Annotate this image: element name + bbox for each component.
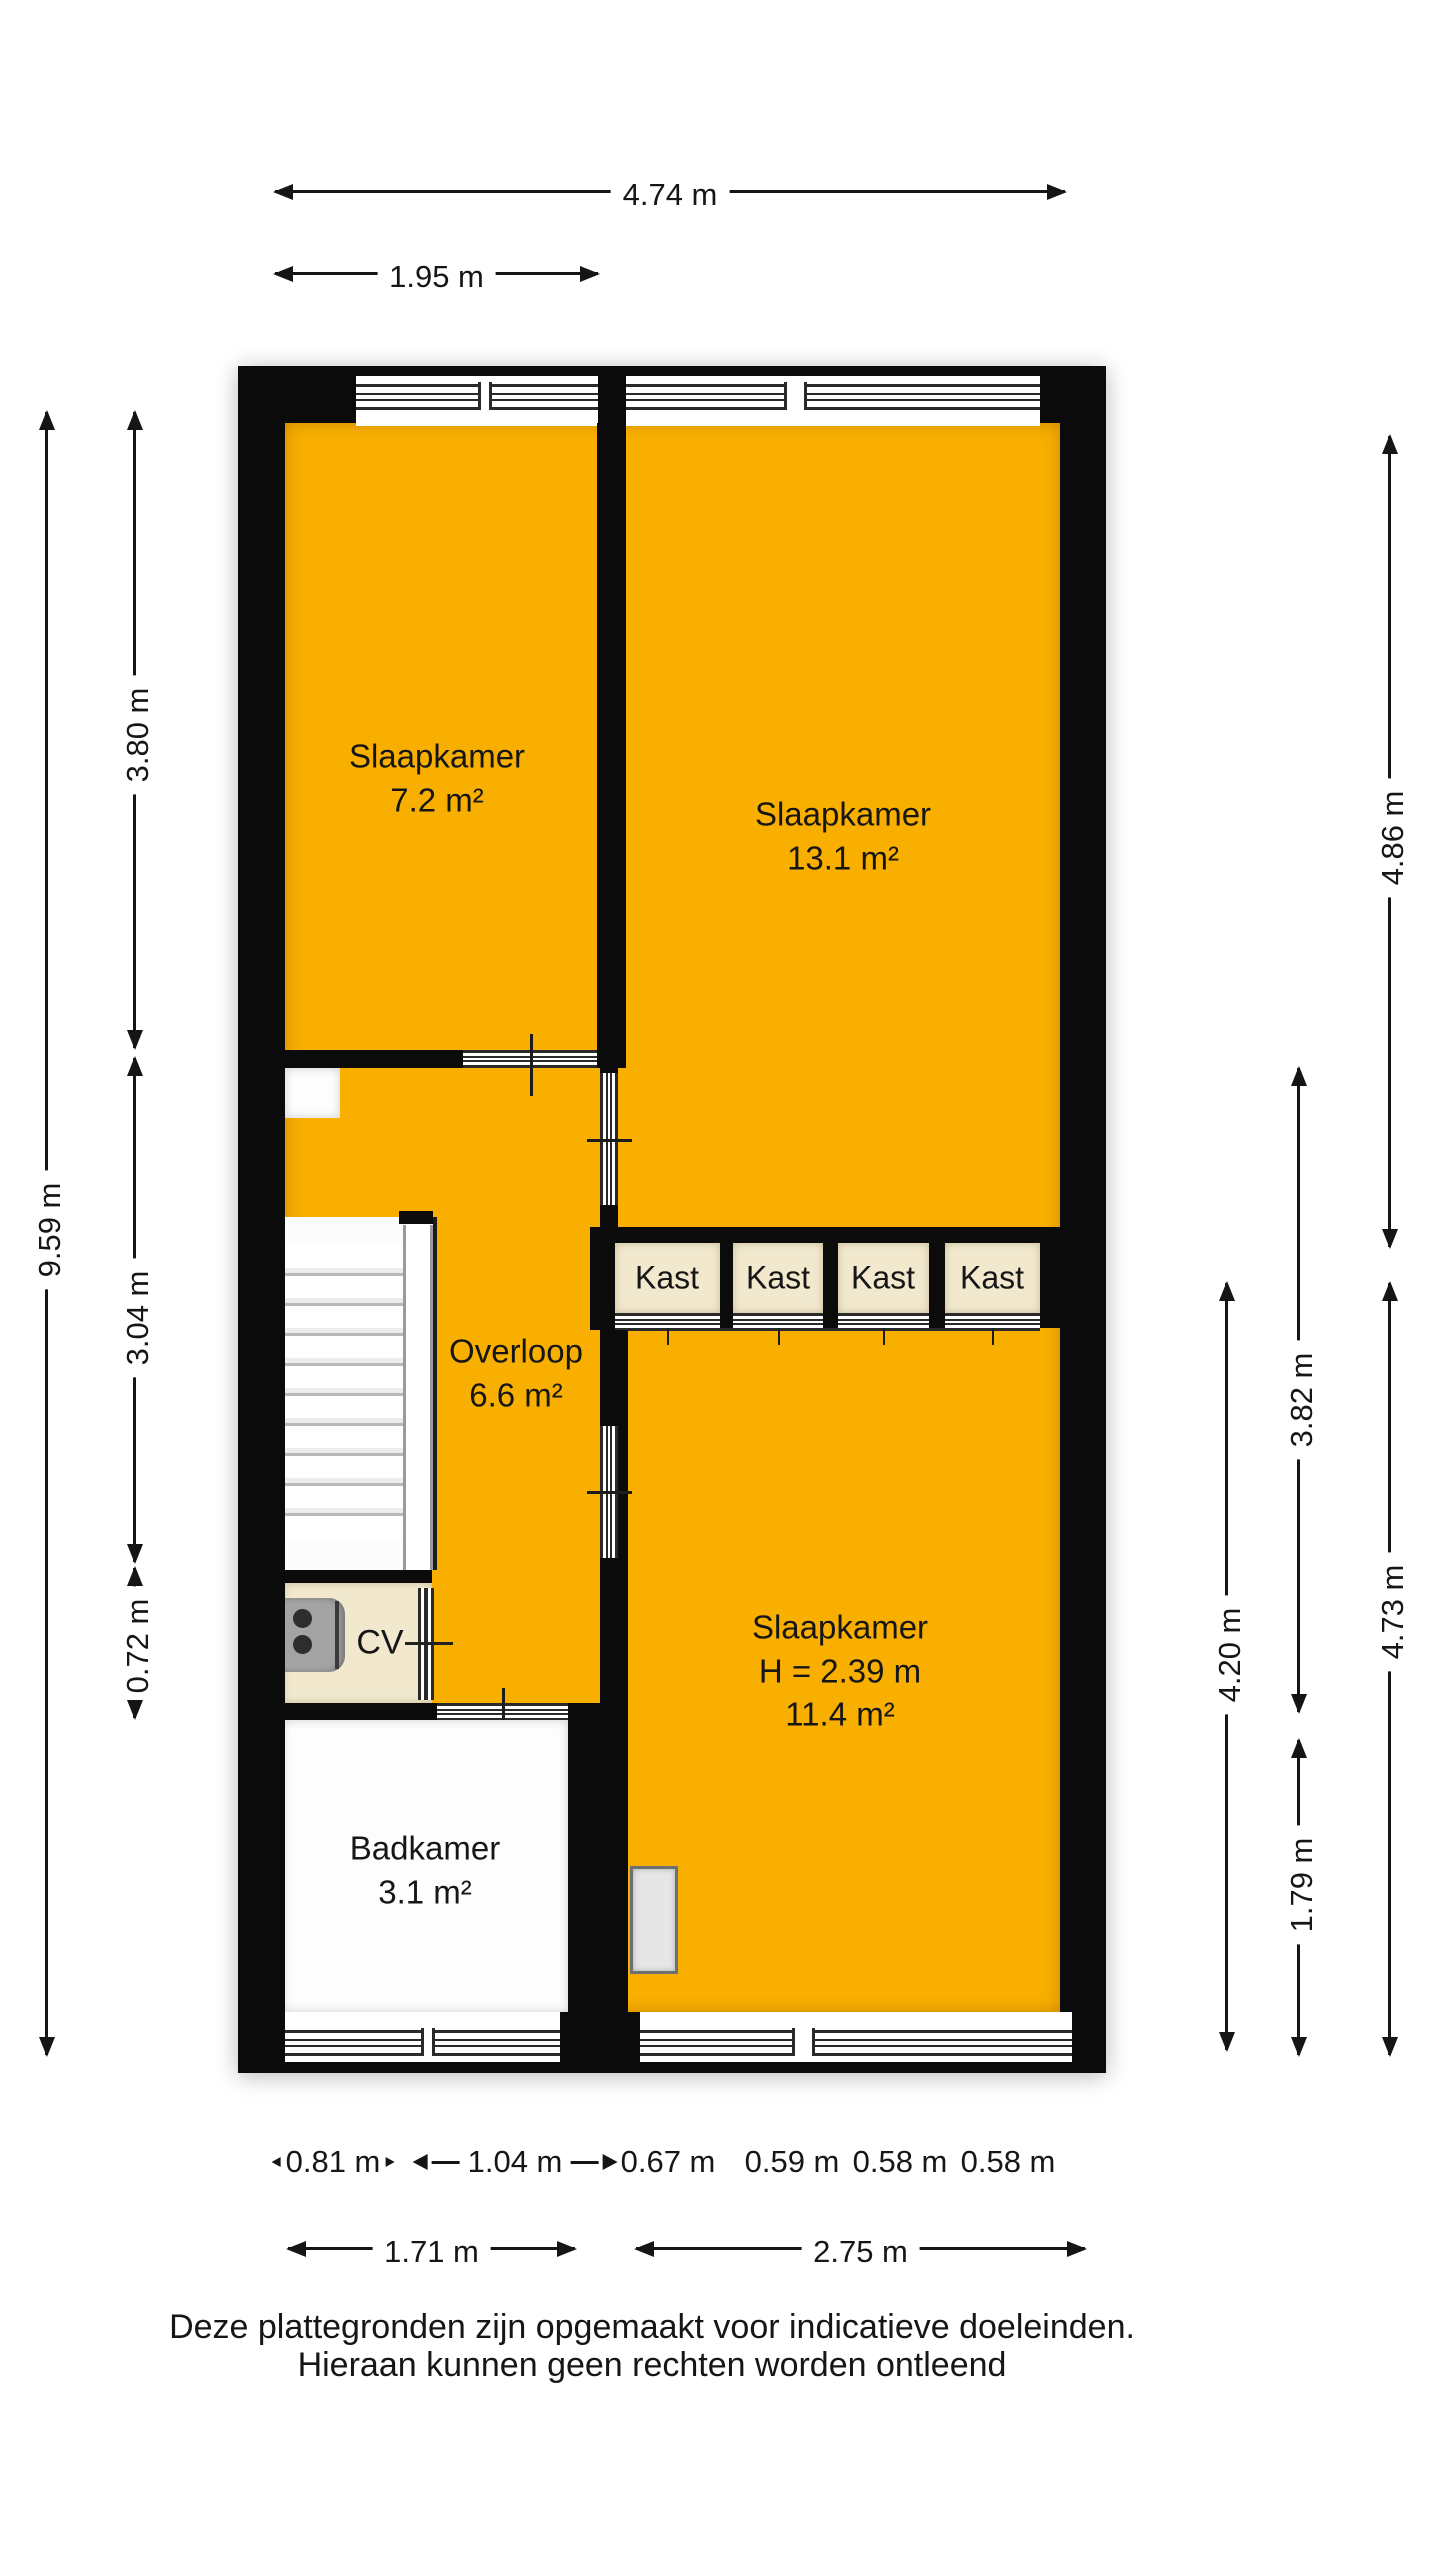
wall-bedroom-divider bbox=[597, 423, 626, 1068]
dim-line-stub bbox=[432, 2161, 460, 2164]
wall-kast-left bbox=[590, 1243, 615, 1330]
label-slaapkamer-7: Slaapkamer 7.2 m² bbox=[349, 734, 525, 821]
window-mullion bbox=[478, 382, 492, 410]
dim-label: 1.71 m bbox=[372, 2232, 491, 2272]
stairs-railing bbox=[403, 1225, 433, 1570]
dim-label: 0.59 m bbox=[745, 2144, 840, 2180]
room-area: 6.6 m² bbox=[449, 1373, 583, 1417]
dim-bottom-seg-3: 0.67 m bbox=[621, 2144, 716, 2180]
dim-right-inner-label: 4.20 m bbox=[1210, 1596, 1250, 1715]
bottom-window-right bbox=[640, 2012, 1072, 2062]
boiler-icon bbox=[283, 1598, 345, 1672]
dim-bottom-seg-2: 1.04 m bbox=[413, 2144, 618, 2180]
wall-outer-right bbox=[1060, 366, 1106, 2073]
dim-left-middle-label: 3.04 m bbox=[118, 1259, 158, 1378]
room-area: 11.4 m² bbox=[752, 1693, 928, 1737]
room-name: Slaapkamer bbox=[755, 792, 931, 836]
room-area: 3.1 m² bbox=[350, 1870, 500, 1914]
kast-door-tick bbox=[883, 1328, 885, 1345]
dim-label: 0.67 m bbox=[621, 2144, 716, 2180]
top-window-right bbox=[626, 376, 1040, 426]
dim-left-middle: 3.04 m bbox=[133, 1058, 136, 1562]
door-tick bbox=[587, 1491, 632, 1494]
dim-label: 0.81 m bbox=[286, 2144, 381, 2180]
kast-label: Kast bbox=[746, 1260, 810, 1297]
wall-outer-left bbox=[238, 366, 285, 2073]
wall-cv-top bbox=[285, 1570, 432, 1583]
room-height: H = 2.39 m bbox=[752, 1649, 928, 1693]
stairs bbox=[285, 1217, 437, 1570]
kast-label: Kast bbox=[635, 1260, 699, 1297]
dim-label: 2.75 m bbox=[801, 2232, 920, 2272]
wall-bottom-pier bbox=[568, 2012, 628, 2073]
floorplan-page: 4.74 m 1.95 m 9.59 m 3.80 m 3.04 m 0.72 … bbox=[0, 0, 1440, 2560]
window-mullion bbox=[784, 382, 807, 410]
window-glazing bbox=[626, 384, 1040, 410]
dim-left-upper: 3.80 m bbox=[133, 412, 136, 1048]
cv-leader-line bbox=[405, 1642, 453, 1645]
kast-label: Kast bbox=[851, 1260, 915, 1297]
room-name: Badkamer bbox=[350, 1826, 500, 1870]
dim-bottom-seg-6: 0.58 m bbox=[961, 2144, 1056, 2180]
dim-right-outer-upper: 4.86 m bbox=[1388, 436, 1391, 1247]
dim-left-total: 9.59 m bbox=[45, 412, 48, 2055]
label-overloop: Overloop 6.6 m² bbox=[449, 1329, 583, 1416]
arrow-right-icon bbox=[385, 2157, 394, 2167]
building-outline: Kast Kast Kast Kast CV bbox=[238, 366, 1106, 2073]
boiler-knob-icon bbox=[293, 1609, 312, 1628]
kast-stud bbox=[1040, 1243, 1060, 1328]
dim-top-total-label: 4.74 m bbox=[611, 175, 730, 215]
radiator-icon bbox=[630, 1866, 678, 1974]
window-glazing bbox=[356, 384, 598, 410]
dim-label: 1.04 m bbox=[460, 2144, 571, 2180]
stairs-treads bbox=[285, 1246, 403, 1538]
wall-badkamer-slaapkamer11 bbox=[568, 1703, 628, 2012]
dim-right-mid-lower-label: 1.79 m bbox=[1282, 1826, 1322, 1945]
label-badkamer: Badkamer 3.1 m² bbox=[350, 1826, 500, 1913]
label-slaapkamer-13: Slaapkamer 13.1 m² bbox=[755, 792, 931, 879]
kast-door-tick bbox=[992, 1328, 994, 1345]
dim-top-total: 4.74 m bbox=[275, 190, 1065, 193]
dim-left-total-label: 9.59 m bbox=[30, 1171, 70, 1290]
dim-bottom-total-left: 1.71 m bbox=[288, 2247, 575, 2250]
window-mullion bbox=[421, 2028, 435, 2056]
door-tick bbox=[587, 1139, 632, 1142]
kast-door-tick bbox=[667, 1328, 669, 1345]
bottom-window-left bbox=[285, 2012, 560, 2062]
dim-top-left-label: 1.95 m bbox=[377, 257, 496, 297]
wall-slaapkamer7-overloop bbox=[285, 1050, 463, 1068]
dim-right-mid-upper: 3.82 m bbox=[1297, 1068, 1300, 1712]
boiler-knob-icon bbox=[293, 1635, 312, 1654]
dim-bottom-seg-1: 0.81 m bbox=[272, 2144, 395, 2180]
cv-label: CV bbox=[356, 1624, 403, 1663]
room-name: Slaapkamer bbox=[752, 1606, 928, 1650]
dim-right-inner: 4.20 m bbox=[1225, 1283, 1228, 2050]
dim-right-outer-lower-label: 4.73 m bbox=[1373, 1553, 1413, 1672]
top-window-left bbox=[356, 376, 598, 426]
dim-bottom-seg-4: 0.59 m bbox=[745, 2144, 840, 2180]
kast-door-tick bbox=[778, 1328, 780, 1345]
wall-badkamer-top bbox=[283, 1703, 437, 1720]
disclaimer-line-2: Hieraan kunnen geen rechten worden ontle… bbox=[298, 2346, 1007, 2385]
dim-right-mid-upper-label: 3.82 m bbox=[1282, 1341, 1322, 1460]
door-tick bbox=[530, 1034, 533, 1096]
kast-stud bbox=[929, 1243, 945, 1328]
wall-kast-top bbox=[590, 1227, 1106, 1243]
disclaimer-line-1: Deze plattegronden zijn opgemaakt voor i… bbox=[169, 2308, 1135, 2347]
label-slaapkamer-11: Slaapkamer H = 2.39 m 11.4 m² bbox=[752, 1606, 928, 1737]
stairs-rail-cap bbox=[399, 1211, 433, 1224]
room-area: 13.1 m² bbox=[755, 836, 931, 880]
room-name: Slaapkamer bbox=[349, 734, 525, 778]
kast-label: Kast bbox=[960, 1260, 1024, 1297]
room-area: 7.2 m² bbox=[349, 778, 525, 822]
dim-right-mid-lower: 1.79 m bbox=[1297, 1740, 1300, 2055]
dim-bottom-total-right: 2.75 m bbox=[636, 2247, 1085, 2250]
dim-label: 0.58 m bbox=[961, 2144, 1056, 2180]
dim-left-lower-label: 0.72 m bbox=[118, 1587, 158, 1706]
dim-left-upper-label: 3.80 m bbox=[118, 676, 158, 795]
chimney-niche bbox=[285, 1068, 340, 1118]
kast-stud bbox=[823, 1243, 838, 1328]
dim-right-outer-lower: 4.73 m bbox=[1388, 1283, 1391, 2055]
room-name: Overloop bbox=[449, 1329, 583, 1373]
kast-stud bbox=[720, 1243, 733, 1328]
dim-line-stub bbox=[570, 2161, 598, 2164]
arrow-left-icon bbox=[272, 2157, 281, 2167]
arrow-right-icon bbox=[602, 2154, 617, 2170]
window-mullion bbox=[792, 2028, 815, 2056]
dim-top-left: 1.95 m bbox=[275, 272, 598, 275]
dim-bottom-seg-5: 0.58 m bbox=[853, 2144, 948, 2180]
boiler-panel-line bbox=[335, 1601, 339, 1669]
dim-label: 0.58 m bbox=[853, 2144, 948, 2180]
arrow-left-icon bbox=[413, 2154, 428, 2170]
dim-right-outer-upper-label: 4.86 m bbox=[1373, 779, 1413, 898]
window-glazing bbox=[640, 2030, 1072, 2056]
dim-left-lower: 0.72 m bbox=[133, 1568, 136, 1718]
